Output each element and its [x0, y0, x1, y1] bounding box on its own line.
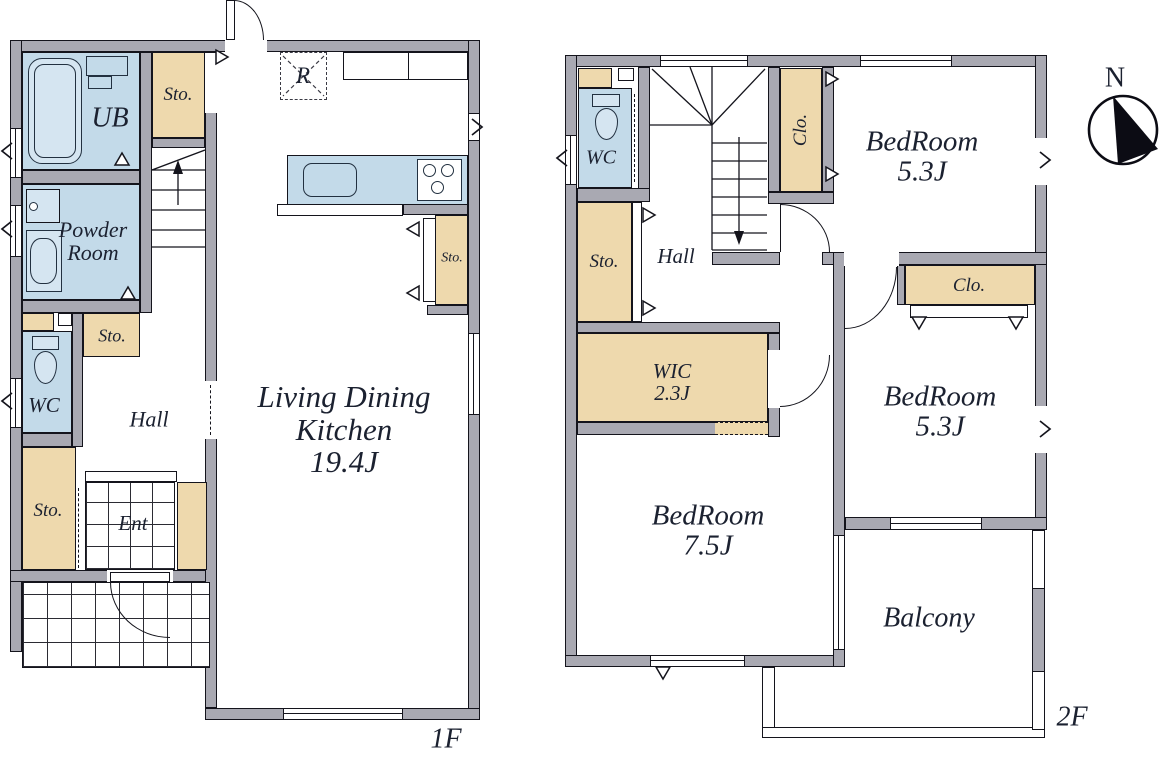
wall-1f-wc-right [72, 313, 83, 447]
wall-2f-stairs-bottom [712, 252, 780, 265]
room-label-sto-mid: Sto. [98, 327, 126, 346]
room-label-clo-north: Clo. [791, 114, 811, 146]
room-label-wc-1f: WC [28, 394, 60, 416]
burner-icon [441, 164, 454, 177]
niche-box [618, 68, 634, 81]
door-arc-icon [780, 204, 830, 252]
wall-1f-kitchen-under [403, 204, 468, 215]
entry-door-opening [225, 39, 267, 53]
wall-1f-leftcol-vertical [140, 52, 152, 313]
room-label-bedroom-sw: BedRoom 7.5J [652, 501, 765, 562]
entrance-step [85, 471, 177, 482]
room-label-powder: Powder Room [39, 218, 147, 264]
wall-2f-closet-east-corner [897, 265, 905, 305]
stove-icon [417, 159, 462, 201]
bedroom-ne-name: BedRoom [866, 127, 979, 157]
bath-shelf-icon [88, 76, 112, 89]
room-label-sto-lower: Sto. [33, 501, 62, 521]
room-label-sto-2f: Sto. [589, 252, 618, 272]
bedroom-ne-size: 5.3J [866, 157, 979, 187]
wic-name: WIC [653, 360, 692, 382]
wall-2f-above-wic [577, 322, 780, 333]
wall-2f-wic-bottom [577, 422, 717, 435]
wall-1f-sto-ldk-bottom [427, 305, 468, 315]
wic-open-passage [715, 422, 768, 435]
slider-dash-line [210, 385, 211, 435]
open-triangle-icon [1007, 315, 1025, 331]
open-triangle-icon [641, 299, 657, 317]
wall-1f-ub-bottom [22, 170, 140, 184]
door-arc-icon [234, 0, 264, 40]
bedroom-sw-name: BedRoom [652, 501, 765, 531]
bedroom-door-opening [844, 251, 899, 266]
kitchen-lower-counter [277, 204, 403, 216]
sink-icon [303, 163, 357, 197]
refrigerator-label: R [296, 64, 310, 88]
room-label-balcony: Balcony [883, 603, 975, 632]
washer-drain-icon [29, 202, 38, 211]
ldk-size: 19.4J [218, 446, 470, 479]
open-triangle-icon [119, 285, 137, 301]
stairs-up-icon [152, 148, 205, 248]
ldk-name: Living Dining Kitchen [218, 381, 470, 446]
window-chevron-icon [555, 148, 569, 168]
room-label-sto-top: Sto. [163, 85, 192, 105]
wc-door-dash [634, 94, 635, 182]
bath-counter-icon [86, 56, 128, 76]
front-door-leaf [110, 572, 170, 582]
floor1-label: 1F [430, 724, 461, 753]
wall-2f-wc-right [638, 67, 650, 190]
storage-open-dash [78, 488, 79, 568]
open-triangle-icon [214, 48, 230, 66]
bedroom-se-name: BedRoom [884, 382, 997, 412]
wc-shelf-2f [578, 68, 612, 88]
open-triangle-icon [405, 220, 421, 238]
stairs-down-icon [650, 67, 768, 253]
window [860, 55, 952, 67]
window [660, 55, 748, 67]
wall-2f-right [1035, 55, 1047, 530]
window-chevron-icon [0, 141, 14, 161]
burner-icon [423, 164, 436, 177]
room-label-sto-ldk: Sto. [441, 252, 462, 267]
window-chevron-icon [1038, 419, 1052, 439]
window-chevron-icon [470, 117, 484, 137]
wic-size: 2.3J [653, 382, 692, 404]
window-chevron-icon [0, 219, 14, 239]
balcony-wall [762, 667, 775, 729]
wall-2f-below-wc [577, 188, 650, 202]
compass-icon [1086, 92, 1164, 170]
balcony-wall [762, 727, 1045, 738]
room-label-bedroom-ne: BedRoom 5.3J [866, 127, 979, 188]
wall-2f-stairs-right [768, 67, 780, 192]
door-arc-icon [845, 267, 897, 329]
wall-1f-stairs-top [152, 138, 205, 148]
wall-1f-powder-bottom [22, 300, 140, 313]
room-label-bedroom-se: BedRoom 5.3J [884, 382, 997, 443]
bedroom-se-size: 5.3J [884, 412, 997, 442]
shoe-cabinet [177, 482, 207, 570]
open-triangle-icon [641, 206, 657, 224]
wic-door-opening [767, 350, 781, 408]
room-label-hall-2f: Hall [657, 245, 694, 267]
room-label-ldk: Living Dining Kitchen 19.4J [218, 381, 470, 479]
balcony-wall-panel [1032, 588, 1045, 672]
window [283, 708, 403, 720]
room-label-ub: UB [91, 103, 128, 132]
window-chevron-icon [0, 391, 14, 411]
window-chevron-icon [1038, 150, 1052, 170]
bedroom-sw-size: 7.5J [652, 531, 765, 561]
counter-divider [408, 53, 409, 79]
room-label-ent: Ent [118, 512, 147, 534]
kitchen-upper-counter [343, 52, 468, 80]
open-triangle-icon [405, 284, 421, 302]
north-label: N [1105, 63, 1125, 92]
wall-1f-wc-bottom [22, 433, 72, 447]
window [833, 535, 845, 650]
burner-icon [431, 181, 444, 194]
wall-2f-below-closet [768, 192, 834, 204]
floor2-label: 2F [1056, 702, 1087, 731]
toilet-tank-icon [32, 336, 59, 350]
hall-ldk-slider-opening [204, 381, 218, 439]
floorplan-canvas: UB Sto. Powder Room Sto. WC Hall Sto. En… [0, 0, 1165, 760]
open-triangle-icon [113, 151, 131, 167]
niche-box [58, 313, 72, 326]
open-triangle-icon [824, 165, 840, 183]
toilet-tank-icon [592, 94, 620, 107]
open-triangle-icon [654, 665, 672, 681]
wall-2f-top [565, 55, 1047, 67]
bathtub-inner-icon [34, 64, 76, 158]
room-label-wic: WIC 2.3J [653, 360, 692, 404]
window [890, 517, 982, 530]
open-triangle-icon [824, 70, 840, 88]
door-arc-icon [780, 355, 830, 407]
open-triangle-icon [910, 315, 928, 331]
wc-shelf [22, 313, 54, 331]
room-label-clo-east: Clo. [953, 276, 985, 296]
room-label-wc-2f: WC [586, 148, 616, 169]
room-label-hall-1f: Hall [129, 407, 168, 430]
